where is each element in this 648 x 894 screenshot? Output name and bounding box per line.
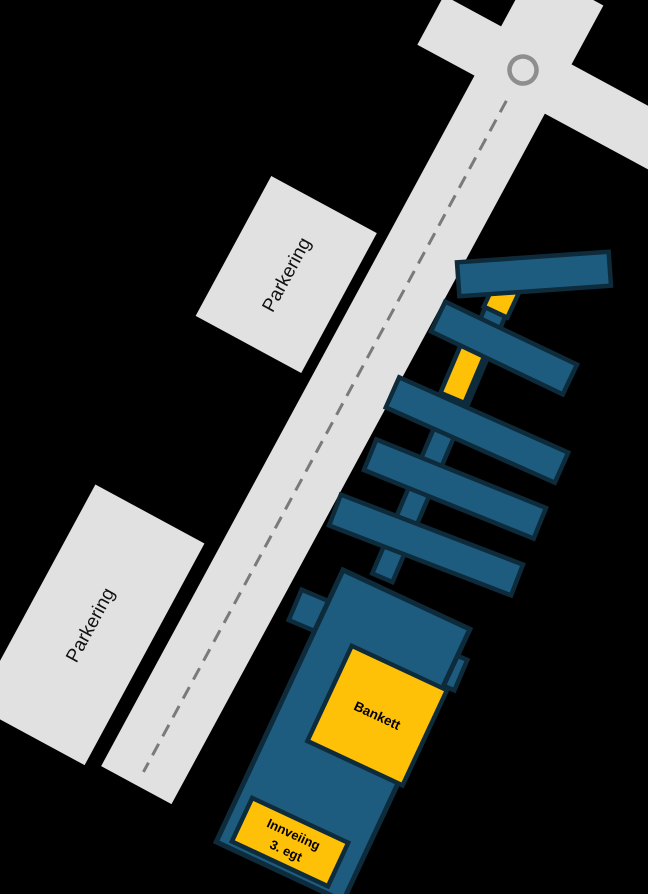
venue-map: Parkering Parkering Bankett Innveiing 3.… xyxy=(0,0,648,894)
map-canvas: Parkering Parkering Bankett Innveiing 3.… xyxy=(0,0,648,894)
